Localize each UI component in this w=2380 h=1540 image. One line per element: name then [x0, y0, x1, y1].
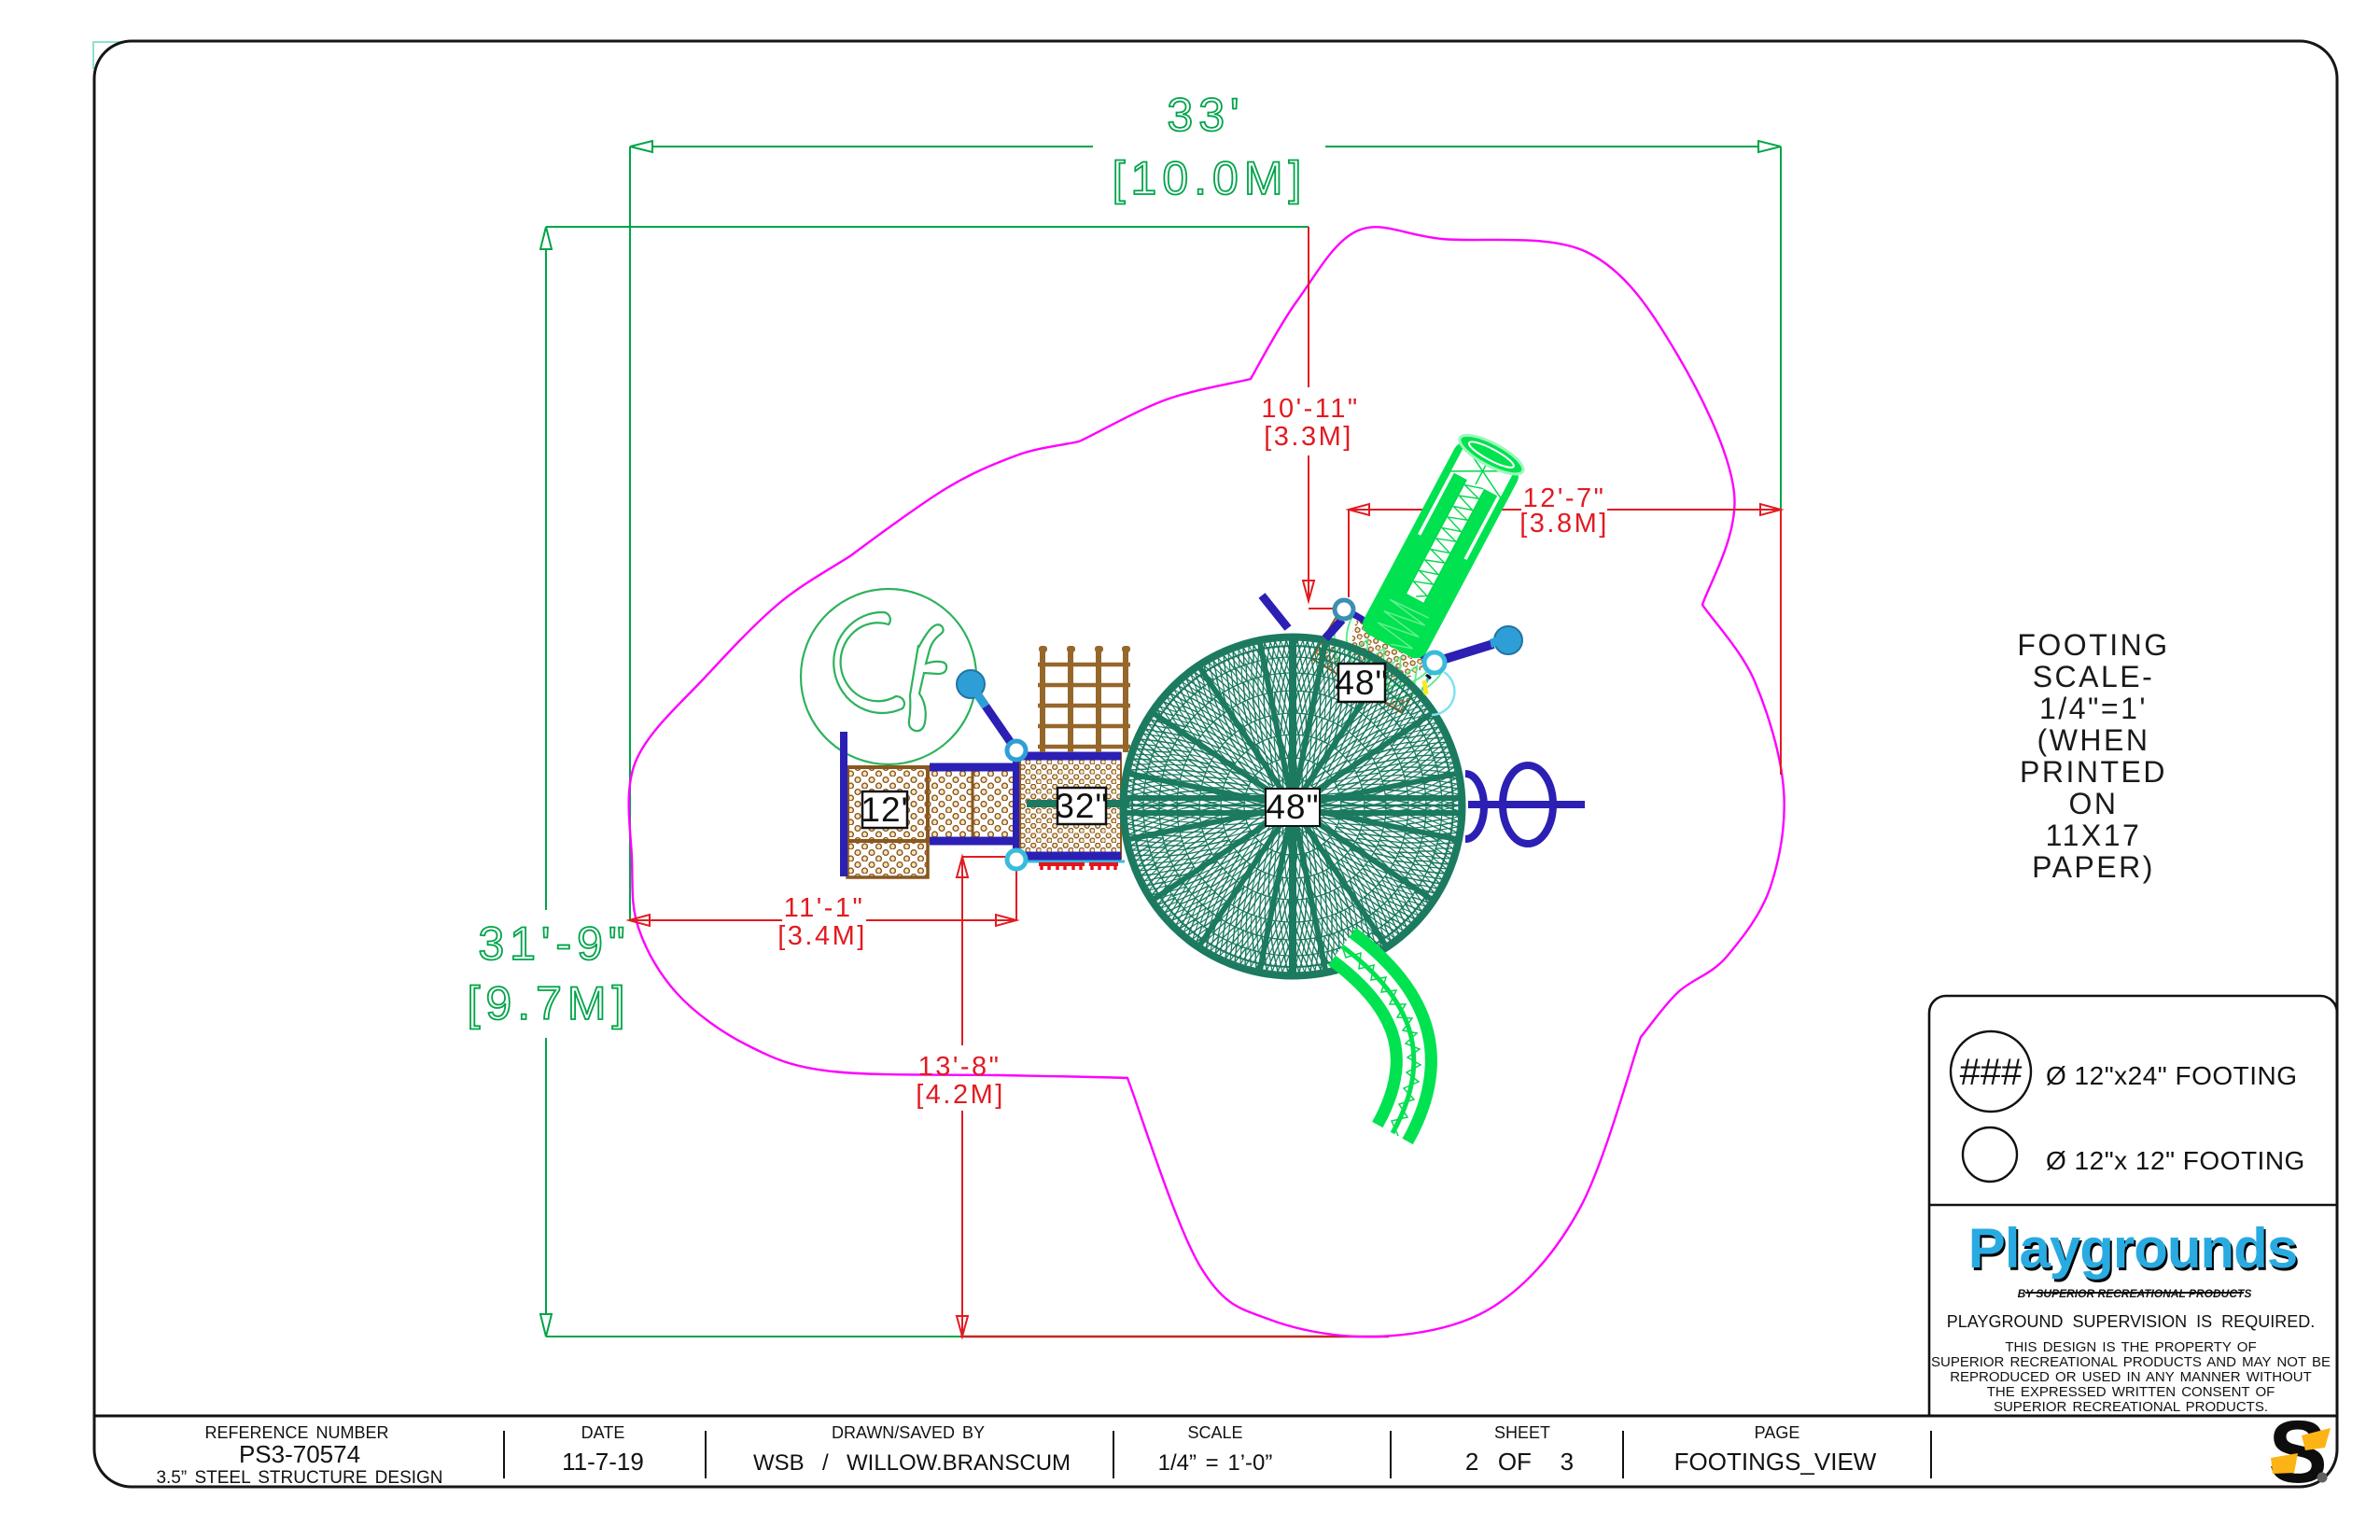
svg-text:REPRODUCED OR USED IN ANY MANN: REPRODUCED OR USED IN ANY MANNER WITHOUT: [1950, 1369, 2312, 1385]
svg-text:S: S: [2268, 1403, 2327, 1502]
svg-text:[3.4M]: [3.4M]: [777, 921, 867, 951]
svg-text:FOOTING: FOOTING: [2017, 628, 2169, 662]
svg-text:BY SUPERIOR RECREATIONAL PRODU: BY SUPERIOR RECREATIONAL PRODUCTS: [2018, 1287, 2252, 1300]
svg-text:32": 32": [1055, 787, 1108, 825]
svg-text:REFERENCE NUMBER: REFERENCE NUMBER: [204, 1423, 388, 1442]
svg-text:Playgrounds: Playgrounds: [1968, 1217, 2297, 1280]
svg-text:THIS DESIGN IS THE PROPERTY OF: THIS DESIGN IS THE PROPERTY OF: [2005, 1339, 2256, 1355]
svg-text:33': 33': [1167, 89, 1244, 141]
svg-text:1/4"=1': 1/4"=1': [2039, 692, 2148, 725]
svg-text:SUPERIOR RECREATIONAL PRODUCTS: SUPERIOR RECREATIONAL PRODUCTS.: [1994, 1399, 2268, 1415]
svg-text:31'-9": 31'-9": [478, 917, 630, 970]
svg-text:[3.3M]: [3.3M]: [1264, 422, 1353, 452]
svg-text:10'-11": 10'-11": [1261, 394, 1359, 424]
svg-text:(WHEN: (WHEN: [2037, 723, 2150, 757]
svg-text:[10.0M]: [10.0M]: [1113, 152, 1308, 204]
svg-text:SCALE-: SCALE-: [2033, 660, 2155, 693]
svg-text:DRAWN/SAVED BY: DRAWN/SAVED BY: [832, 1423, 985, 1442]
svg-text:[4.2M]: [4.2M]: [916, 1080, 1005, 1110]
svg-text:THE EXPRESSED WRITTEN CONSENT: THE EXPRESSED WRITTEN CONSENT OF: [1987, 1384, 2275, 1400]
svg-text:12': 12': [861, 791, 908, 829]
svg-text:ON: ON: [2069, 787, 2119, 820]
svg-text:PS3-70574: PS3-70574: [239, 1440, 360, 1468]
svg-text:Ø 12"x24" FOOTING: Ø 12"x24" FOOTING: [2046, 1061, 2298, 1090]
svg-text:13'-8": 13'-8": [918, 1052, 1001, 1082]
svg-text:48": 48": [1266, 788, 1319, 826]
svg-text:PAGE: PAGE: [1755, 1423, 1800, 1442]
svg-text:FOOTINGS_VIEW: FOOTINGS_VIEW: [1674, 1448, 1877, 1476]
svg-text:3.5” STEEL STRUCTURE DESIGN: 3.5” STEEL STRUCTURE DESIGN: [156, 1468, 442, 1488]
svg-text:[9.7M]: [9.7M]: [468, 977, 631, 1029]
svg-text:[3.8M]: [3.8M]: [1519, 509, 1609, 539]
svg-text:11-7-19: 11-7-19: [562, 1448, 644, 1476]
svg-text:Ø 12"x 12" FOOTING: Ø 12"x 12" FOOTING: [2046, 1146, 2305, 1175]
svg-text:SHEET: SHEET: [1494, 1423, 1550, 1442]
svg-text:PRINTED: PRINTED: [2020, 755, 2167, 789]
svg-text:11'-1": 11'-1": [784, 893, 865, 923]
svg-text:PAPER): PAPER): [2032, 850, 2155, 884]
svg-text:PLAYGROUND SUPERVISION IS REQU: PLAYGROUND SUPERVISION IS REQUIRED.: [1947, 1312, 2315, 1331]
svg-text:48": 48": [1335, 664, 1388, 702]
svg-text:###: ###: [1960, 1052, 2023, 1093]
svg-text:WSB / WILLOW.BRANSCUM: WSB / WILLOW.BRANSCUM: [753, 1450, 1071, 1476]
svg-text:1/4” = 1’-0”: 1/4” = 1’-0”: [1158, 1450, 1273, 1476]
svg-text:SUPERIOR RECREATIONAL PRODUCTS: SUPERIOR RECREATIONAL PRODUCTS AND MAY N…: [1931, 1354, 2331, 1370]
svg-text:11X17: 11X17: [2046, 819, 2142, 852]
svg-text:SCALE: SCALE: [1187, 1423, 1242, 1442]
svg-text:2 OF 3: 2 OF 3: [1465, 1448, 1574, 1476]
svg-text:DATE: DATE: [581, 1423, 625, 1442]
